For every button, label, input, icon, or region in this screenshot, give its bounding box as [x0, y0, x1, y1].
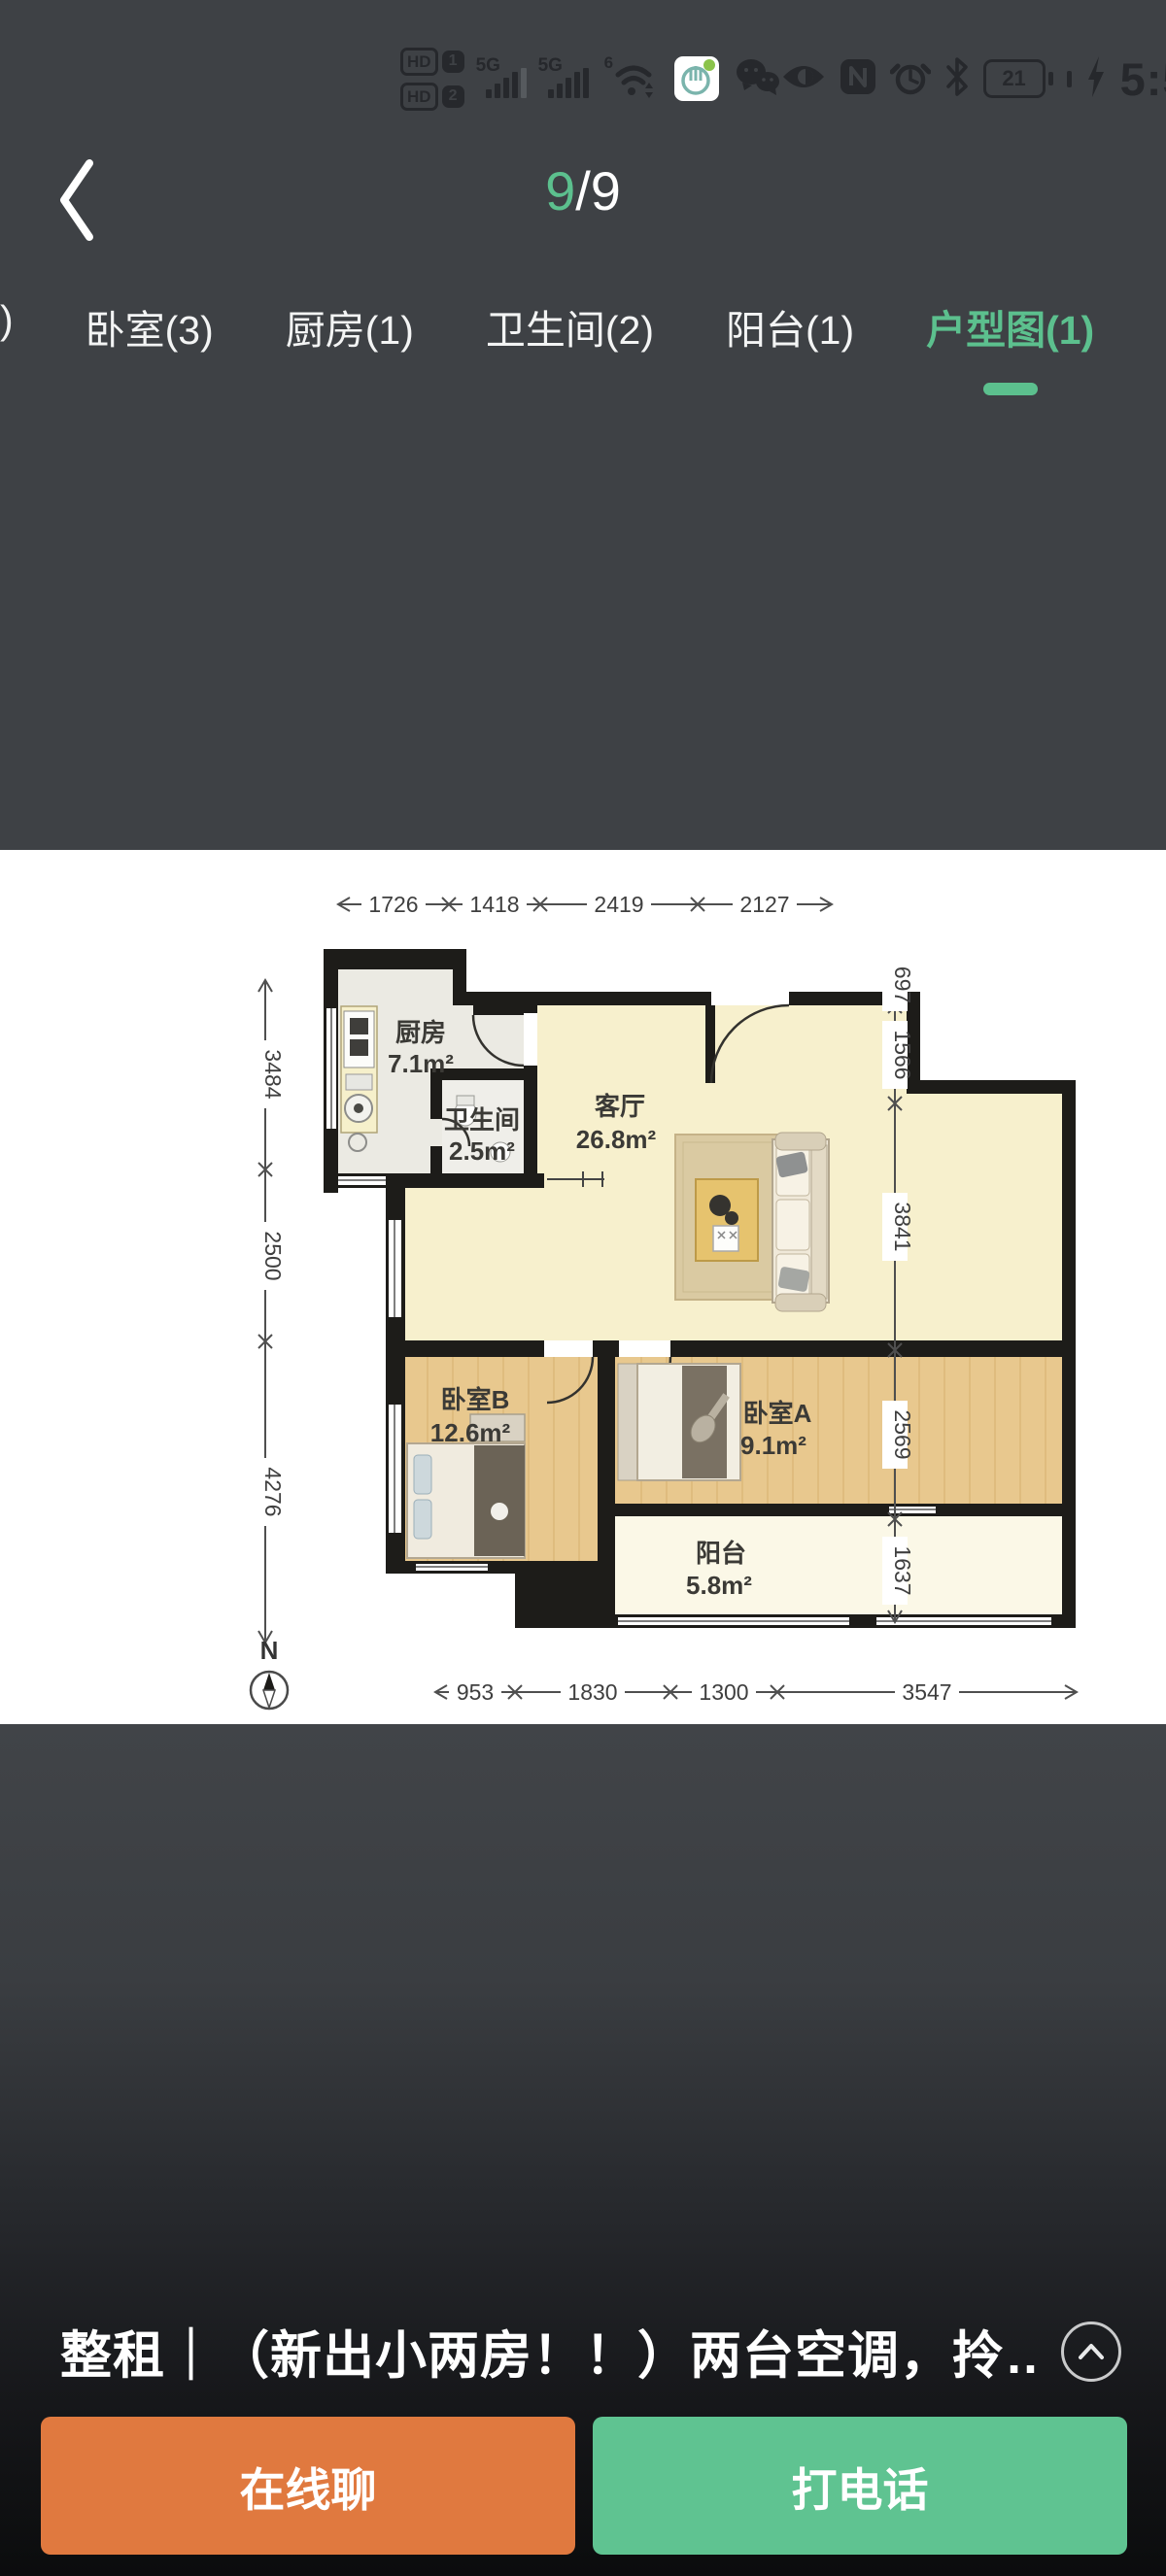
wifi6-label: 6: [604, 53, 613, 73]
signal-1-icon: 5G: [480, 57, 527, 100]
bathroom-label: 卫生间: [444, 1105, 520, 1135]
page-indicator: 9/9: [0, 159, 1166, 222]
dim-bottom-2: 1830: [567, 1679, 617, 1705]
page-total: 9: [591, 160, 621, 221]
chevron-up-icon: [1077, 2342, 1106, 2361]
charging-bolt-icon: [1085, 56, 1107, 102]
hd2-icon: HD 2: [400, 83, 464, 111]
tab-bedroom[interactable]: 卧室(3): [86, 297, 214, 356]
page-current: 9: [545, 160, 575, 221]
listing-bar: 整租｜（新出小两房！！）两台空调，拎…: [60, 2315, 1121, 2389]
dim-bottom-1: 953: [457, 1679, 494, 1705]
dim-top-1: 1726: [368, 892, 418, 917]
wechat-icon: [735, 57, 781, 101]
compass-icon: N: [251, 1636, 288, 1709]
tab-bathroom[interactable]: 卫生间(2): [486, 297, 654, 356]
charging-app-icon: [674, 56, 719, 101]
kitchen-area: 7.1m²: [388, 1049, 454, 1078]
charge-bar-icon: [1067, 71, 1072, 87]
bluetooth-icon: [944, 56, 970, 102]
kitchen-fixtures: [341, 1006, 377, 1151]
battery-icon: 21: [983, 59, 1053, 98]
listing-title: 整租｜（新出小两房！！）两台空调，拎…: [60, 2315, 1042, 2389]
bedroom-a-label: 卧室A: [743, 1399, 812, 1428]
hd-label: HD: [400, 48, 438, 76]
dim-top-2: 1418: [469, 892, 519, 917]
gallery-header: 9/9: [0, 128, 1166, 272]
alarm-icon: [890, 57, 931, 101]
balcony-area: 5.8m²: [686, 1571, 752, 1600]
dim-left-2: 2500: [260, 1231, 286, 1280]
dim-bottom-4: 3547: [902, 1679, 951, 1705]
collapse-button[interactable]: [1061, 2322, 1121, 2382]
bedroom-b-label: 卧室B: [441, 1385, 510, 1414]
app-screen: HD 1 HD 2 5G 5G 6: [0, 0, 1166, 2576]
tab-balcony[interactable]: 阳台(1): [726, 297, 854, 356]
compass-north-label: N: [260, 1636, 279, 1665]
hd1-number: 1: [442, 51, 464, 73]
livingroom-furniture: [675, 1133, 829, 1311]
hd-indicators: HD 1 HD 2: [400, 48, 464, 111]
floorplan-image[interactable]: 厨房 7.1m² 卫生间 2.5m² 客厅 26.8m² 卧室B 12.6m² …: [0, 850, 1166, 1724]
kitchen-label: 厨房: [395, 1018, 446, 1047]
wifi-icon: 6: [604, 57, 659, 100]
battery-level: 21: [983, 59, 1046, 98]
hd2-number: 2: [442, 85, 464, 108]
balcony-label: 阳台: [696, 1539, 746, 1568]
page-separator: /: [575, 160, 591, 221]
tab-livingroom-partial[interactable]: ): [0, 297, 14, 343]
online-chat-button[interactable]: 在线聊: [41, 2417, 575, 2555]
dim-bottom-3: 1300: [699, 1679, 748, 1705]
status-bar: HD 1 HD 2 5G 5G 6: [0, 0, 1166, 128]
livingroom-area: 26.8m²: [576, 1125, 657, 1154]
dim-right-2: 1566: [890, 1030, 915, 1079]
dim-left-3: 4276: [260, 1467, 286, 1516]
dim-top-3: 2419: [594, 892, 643, 917]
bedroom-b-area: 12.6m²: [430, 1418, 511, 1447]
livingroom-label: 客厅: [595, 1092, 645, 1121]
phone-call-button[interactable]: 打电话: [593, 2417, 1127, 2555]
dim-right-1: 697: [890, 966, 915, 1003]
floorplan-drawing: 厨房 7.1m² 卫生间 2.5m² 客厅 26.8m² 卧室B 12.6m² …: [0, 850, 1166, 1724]
eye-protection-icon: [781, 62, 826, 96]
action-buttons: 在线聊 打电话: [41, 2417, 1127, 2555]
dim-left-1: 3484: [260, 1049, 286, 1099]
hd-label: HD: [400, 83, 438, 111]
status-left-icons: HD 1 HD 2 5G 5G 6: [400, 48, 781, 111]
status-right-icons: 21 5:54: [781, 52, 1166, 106]
dim-right-5: 1637: [890, 1545, 915, 1595]
dim-right-3: 3841: [890, 1202, 915, 1251]
bottom-panel: 整租｜（新出小两房！！）两台空调，拎… 在线聊 打电话: [0, 1724, 1166, 2576]
dim-right-4: 2569: [890, 1409, 915, 1459]
dim-top-4: 2127: [739, 892, 789, 917]
hd1-icon: HD 1: [400, 48, 464, 76]
bedroom-a-furniture: [618, 1364, 740, 1480]
bedroom-a-area: 9.1m²: [740, 1431, 806, 1460]
signal-2-icon: 5G: [542, 57, 589, 100]
bathroom-area: 2.5m²: [449, 1136, 515, 1166]
tab-floorplan[interactable]: 户型图(1): [926, 297, 1094, 356]
photo-category-tabs: ) 卧室(3) 厨房(1) 卫生间(2) 阳台(1) 户型图(1): [0, 272, 1166, 443]
clock-time: 5:54: [1120, 52, 1166, 106]
nfc-icon: [840, 58, 876, 100]
tab-kitchen[interactable]: 厨房(1): [286, 297, 414, 356]
